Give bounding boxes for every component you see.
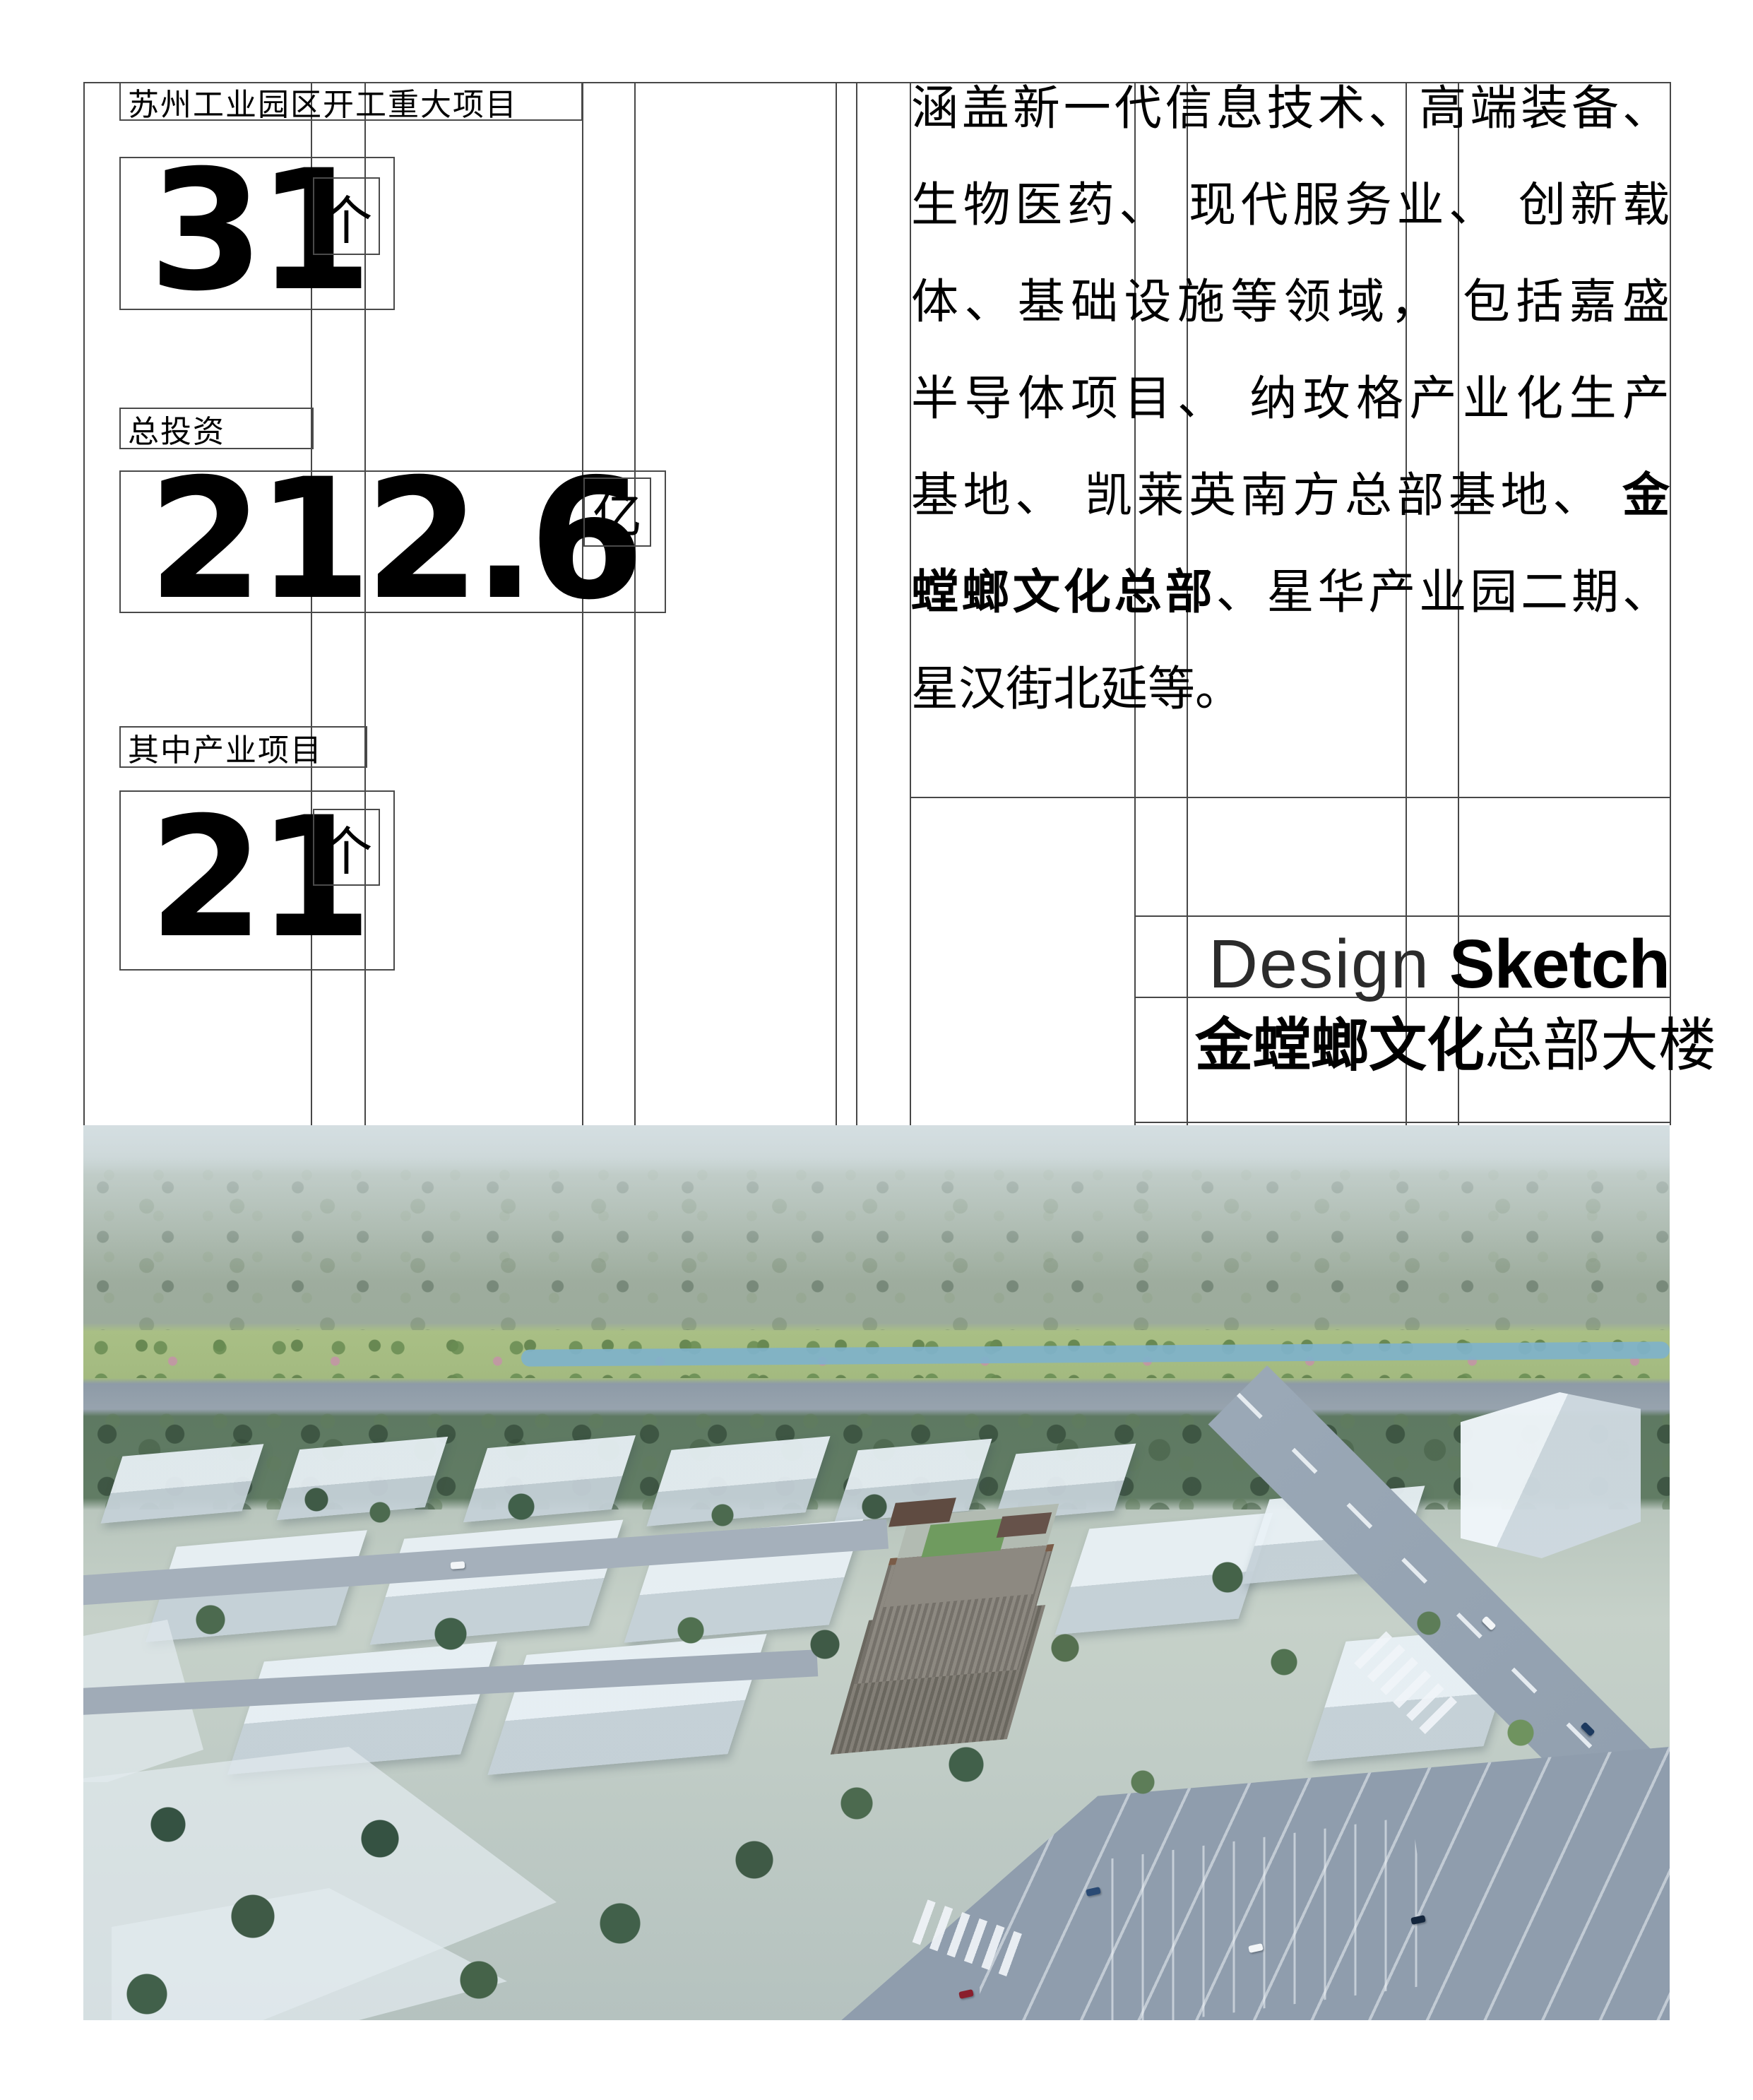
stats-header-box: 苏州工业园区开工重大项目 xyxy=(119,82,583,121)
stat-investment-value: 212.6 xyxy=(148,457,637,623)
grid-line-bottom-right xyxy=(1134,1122,1671,1123)
grid-line-vertical xyxy=(1670,82,1671,1125)
stat-projects-unit: 个 xyxy=(321,179,373,254)
aerial-render-photo xyxy=(83,1125,1670,2020)
design-sketch-word-bold: Sketch xyxy=(1449,925,1670,1002)
stat-investment-unit-box: 亿 xyxy=(583,477,651,547)
jinmantis-hq-building xyxy=(850,1510,1062,1750)
stats-header: 苏州工业园区开工重大项目 xyxy=(128,79,518,124)
building-caption-regular: 总部大楼 xyxy=(1485,1014,1716,1078)
design-sketch-title: Design Sketch xyxy=(1133,930,1670,998)
description-line: 半导体项目、 纳玫格产业化生产 xyxy=(911,350,1670,447)
stat-industrial-unit-box: 个 xyxy=(313,809,380,886)
stat-industrial-label-box: 其中产业项目 xyxy=(119,726,367,768)
stat-projects-unit-box: 个 xyxy=(313,177,380,255)
description-paragraph: 涵盖新一代信息技术、高端装备、 生物医药、 现代服务业、 创新载 体、基础设施等… xyxy=(911,60,1670,737)
stat-industrial-label: 其中产业项目 xyxy=(128,725,323,770)
design-sketch-word-light: Design xyxy=(1208,925,1430,1002)
grid-line-vertical xyxy=(856,82,857,1125)
grid-line-vertical xyxy=(836,82,837,1125)
atmospheric-haze xyxy=(83,1125,1670,1281)
description-line: 星汉街北延等。 xyxy=(911,641,1670,737)
grid-line-above-design-sketch xyxy=(1134,915,1671,917)
grid-line-vertical xyxy=(83,82,85,1125)
stat-industrial-unit: 个 xyxy=(321,809,373,885)
building-caption-bold: 金螳螂文化 xyxy=(1195,1014,1485,1078)
description-line: 基地、 凯莱英南方总部基地、 金 xyxy=(911,447,1670,544)
building-caption: 金螳螂文化总部大楼 xyxy=(1195,1017,1670,1075)
car xyxy=(451,1561,465,1569)
grid-line-under-text xyxy=(910,797,1671,798)
description-line: 螳螂文化总部、星华产业园二期、 xyxy=(911,544,1670,641)
stat-investment-unit: 亿 xyxy=(593,477,642,548)
description-line: 体、基础设施等领域， 包括嘉盛 xyxy=(911,254,1670,350)
description-line: 涵盖新一代信息技术、高端装备、 xyxy=(911,60,1670,157)
description-line: 生物医药、 现代服务业、 创新载 xyxy=(911,157,1670,254)
